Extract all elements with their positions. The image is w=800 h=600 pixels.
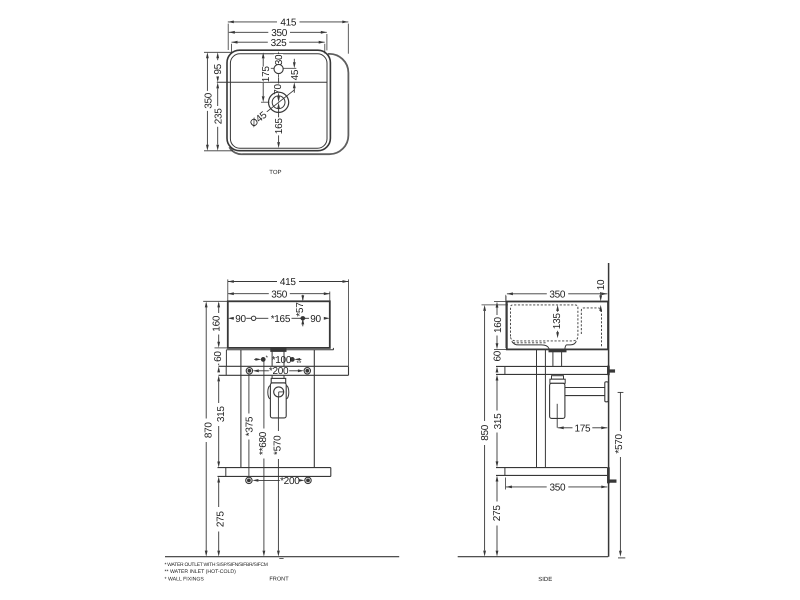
svg-text:315: 315	[216, 406, 227, 423]
svg-text:*100: *100	[272, 355, 292, 366]
svg-text:** WATER INLET (HOT-COLD): ** WATER INLET (HOT-COLD)	[165, 569, 237, 575]
svg-text:350: 350	[203, 92, 214, 109]
svg-text:175: 175	[261, 66, 272, 83]
svg-text:TOP: TOP	[269, 169, 281, 176]
svg-text:160: 160	[212, 315, 223, 332]
svg-text:**680: **680	[258, 431, 269, 455]
svg-text:*57: *57	[295, 302, 306, 317]
svg-text:90: 90	[235, 314, 246, 325]
svg-text:160: 160	[493, 316, 504, 333]
svg-text:30: 30	[274, 54, 285, 65]
svg-text:235: 235	[213, 108, 224, 125]
svg-text:*375: *375	[245, 416, 256, 436]
svg-text:325: 325	[271, 38, 288, 49]
svg-text:90: 90	[310, 314, 321, 325]
svg-text:95: 95	[213, 63, 224, 74]
svg-text:*165: *165	[271, 314, 291, 325]
svg-text:60: 60	[493, 350, 504, 361]
svg-text:135: 135	[552, 313, 563, 330]
svg-text:175: 175	[575, 424, 592, 435]
svg-text:350: 350	[271, 290, 288, 301]
svg-text:45: 45	[290, 69, 301, 80]
svg-text:*570: *570	[272, 435, 283, 455]
svg-text:870: 870	[204, 422, 215, 439]
svg-text:*200: *200	[280, 476, 300, 487]
svg-text:* WALL FIXINGS: * WALL FIXINGS	[165, 576, 205, 582]
svg-text:315: 315	[493, 413, 504, 430]
svg-text:165: 165	[274, 118, 285, 135]
svg-text:60: 60	[213, 351, 224, 362]
svg-text:415: 415	[280, 277, 297, 288]
svg-text:850: 850	[480, 424, 491, 441]
svg-text:415: 415	[280, 17, 297, 28]
svg-text:**: **	[297, 360, 302, 367]
svg-text:*570: *570	[614, 433, 625, 453]
svg-text:10: 10	[596, 279, 607, 290]
svg-text:275: 275	[492, 505, 503, 522]
svg-text:* WATER OUTLET WITH SISP/SIFN: * WATER OUTLET WITH SISP/SIFN/SIFBR/SIFC…	[165, 562, 268, 568]
svg-text:350: 350	[550, 483, 567, 494]
svg-text:SIDE: SIDE	[538, 576, 552, 583]
svg-text:350: 350	[549, 290, 566, 301]
svg-text:275: 275	[216, 511, 227, 528]
svg-text:FRONT: FRONT	[269, 576, 289, 582]
